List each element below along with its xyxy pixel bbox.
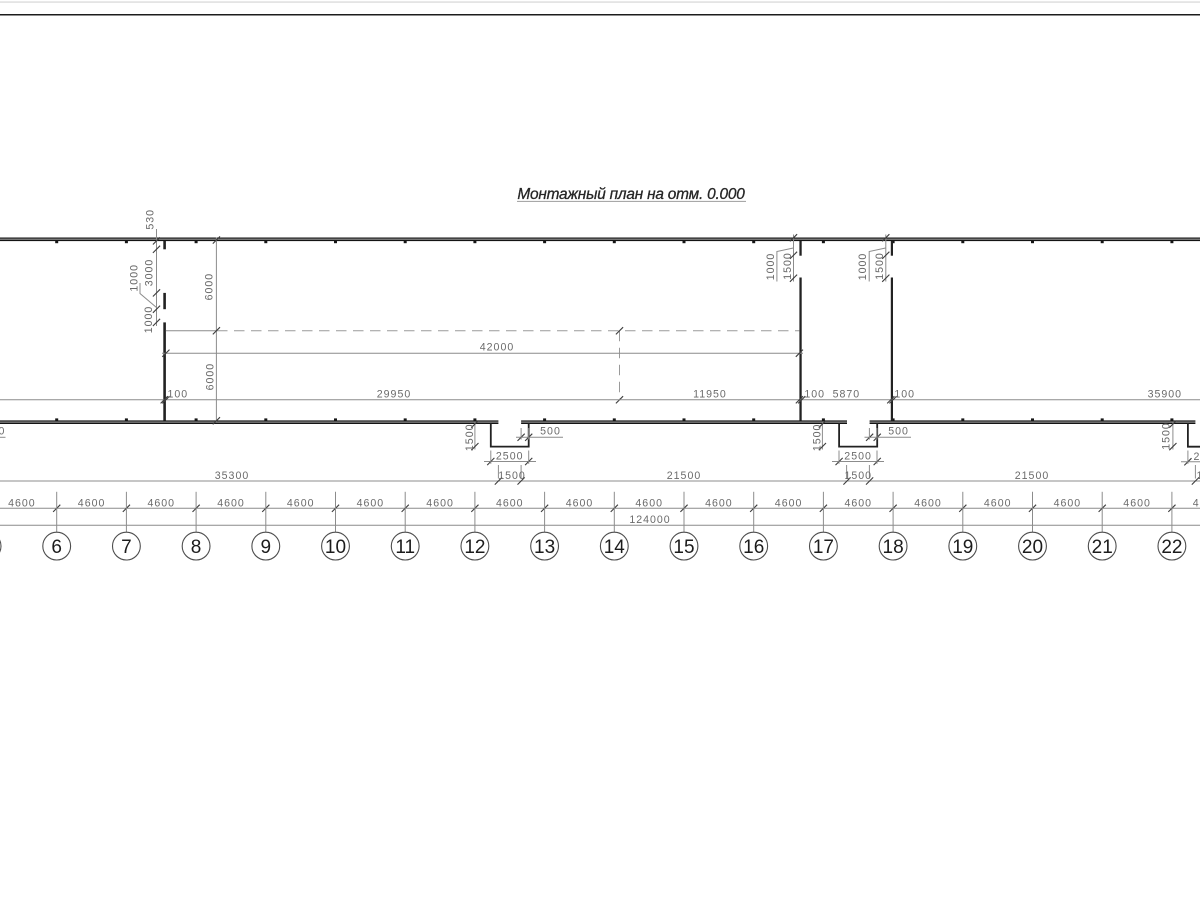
svg-text:2500: 2500 <box>1194 451 1200 463</box>
svg-text:4600: 4600 <box>566 497 594 509</box>
svg-text:21: 21 <box>1092 537 1113 558</box>
svg-text:1500: 1500 <box>1197 470 1200 482</box>
svg-text:21500: 21500 <box>1015 470 1049 482</box>
svg-text:4600: 4600 <box>1193 497 1200 509</box>
svg-text:7: 7 <box>121 537 132 558</box>
svg-text:12: 12 <box>464 537 485 558</box>
svg-text:100: 100 <box>894 389 915 401</box>
svg-text:13: 13 <box>534 537 555 558</box>
svg-text:11950: 11950 <box>693 389 727 401</box>
svg-text:11: 11 <box>395 537 415 558</box>
svg-text:18: 18 <box>883 537 904 558</box>
svg-text:4600: 4600 <box>287 497 315 509</box>
svg-text:8: 8 <box>191 537 202 558</box>
svg-text:19: 19 <box>952 537 973 558</box>
svg-text:4600: 4600 <box>914 497 942 509</box>
svg-text:1500: 1500 <box>874 252 886 280</box>
svg-text:4600: 4600 <box>705 497 733 509</box>
svg-text:17: 17 <box>813 537 834 558</box>
svg-text:21500: 21500 <box>667 470 701 482</box>
svg-text:2500: 2500 <box>496 451 524 463</box>
svg-text:4600: 4600 <box>148 497 176 509</box>
svg-text:29950: 29950 <box>377 389 411 401</box>
svg-text:530: 530 <box>145 209 157 230</box>
svg-text:35900: 35900 <box>1148 389 1182 401</box>
svg-text:4600: 4600 <box>775 497 803 509</box>
svg-text:1500: 1500 <box>845 470 873 482</box>
svg-text:4600: 4600 <box>1054 497 1082 509</box>
svg-text:4600: 4600 <box>217 497 245 509</box>
svg-text:5870: 5870 <box>833 389 861 401</box>
svg-text:1000: 1000 <box>143 306 155 334</box>
svg-text:9: 9 <box>261 537 272 558</box>
svg-text:4600: 4600 <box>1123 497 1151 509</box>
svg-text:4600: 4600 <box>845 497 873 509</box>
svg-text:6000: 6000 <box>205 363 217 391</box>
svg-text:1500: 1500 <box>782 252 794 280</box>
svg-text:6: 6 <box>51 537 62 558</box>
svg-text:4600: 4600 <box>984 497 1012 509</box>
svg-text:15: 15 <box>673 537 694 558</box>
svg-text:22: 22 <box>1161 537 1182 558</box>
svg-text:16: 16 <box>743 537 764 558</box>
svg-text:4600: 4600 <box>635 497 663 509</box>
svg-text:4600: 4600 <box>426 497 454 509</box>
svg-text:1500: 1500 <box>498 470 526 482</box>
svg-text:2500: 2500 <box>844 451 872 463</box>
svg-text:4600: 4600 <box>496 497 524 509</box>
svg-text:1000: 1000 <box>128 264 140 292</box>
svg-text:14: 14 <box>604 537 626 558</box>
svg-text:4600: 4600 <box>78 497 106 509</box>
svg-text:500: 500 <box>888 426 909 438</box>
svg-text:3000: 3000 <box>144 259 156 287</box>
svg-text:100: 100 <box>167 389 188 401</box>
svg-text:100: 100 <box>804 389 825 401</box>
svg-text:1000: 1000 <box>857 253 869 281</box>
svg-text:1000: 1000 <box>765 253 777 281</box>
svg-text:10: 10 <box>325 537 346 558</box>
svg-text:1500: 1500 <box>464 424 476 452</box>
svg-text:4600: 4600 <box>8 497 36 509</box>
svg-text:500: 500 <box>540 426 561 438</box>
svg-text:1500: 1500 <box>1161 422 1173 450</box>
svg-text:4600: 4600 <box>357 497 385 509</box>
svg-text:35300: 35300 <box>215 470 249 482</box>
svg-text:Монтажный план на отм. 0.000: Монтажный план на отм. 0.000 <box>517 186 745 203</box>
svg-text:42000: 42000 <box>480 342 514 354</box>
svg-text:500: 500 <box>0 426 5 438</box>
svg-text:20: 20 <box>1022 537 1043 558</box>
svg-text:1500: 1500 <box>811 424 823 452</box>
svg-text:6000: 6000 <box>204 273 216 301</box>
svg-text:124000: 124000 <box>629 514 670 526</box>
